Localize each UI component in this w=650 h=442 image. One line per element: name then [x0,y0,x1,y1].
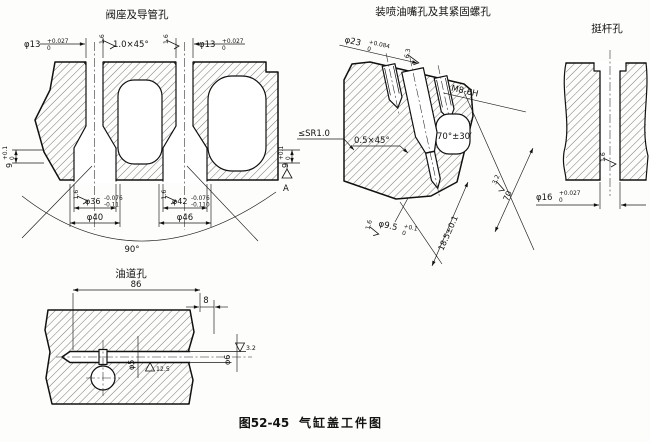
dim-seat-right-od: φ46 [177,213,193,223]
dim-oil-offset: 8 [203,296,208,306]
svg-text:0: 0 [10,156,16,160]
svg-text:1.6: 1.6 [73,190,80,200]
svg-text:-0.076: -0.076 [104,196,123,202]
tip-dim: φ9.5 +0.1 0 1.6 [363,198,418,240]
drawing-page: 阀座及导管孔 φ13 +0.027 [0,0,650,442]
svg-text:9: 9 [281,163,290,168]
dim-inj-chamfer: 0.5×45° [354,136,390,146]
svg-text:3.2: 3.2 [246,345,256,352]
dim-chamfer: 1.0×45° [113,40,149,50]
svg-text:-0.11: -0.11 [104,203,119,209]
tappet-title: 挺杆孔 [591,22,623,35]
seat-depth-left-dim: 9 +0.1 0 [3,146,44,168]
svg-text:0: 0 [559,198,563,204]
svg-text:1.6: 1.6 [161,190,168,200]
engineering-drawing: 阀座及导管孔 φ13 +0.027 [0,0,650,442]
oil-view: 油道孔 86 8 φ5 [45,267,256,404]
tappet-dim: φ16 +0.027 0 [536,182,646,209]
svg-text:12.5: 12.5 [156,366,170,373]
figure-caption: 图52-45 气缸盖工件图 [239,415,383,430]
svg-text:1.6: 1.6 [600,152,607,162]
dim-tappet-bore: φ16 [536,193,552,203]
dim-seat-angle: 90° [124,245,139,255]
dim-cone-angle: 70°±30′ [437,132,472,142]
datum-label: A [283,184,289,194]
seat-depth-right-dim: 9 +0.1 0 [278,146,300,168]
dim-guide-left: φ13 [24,40,40,50]
dim-seat-left-od: φ40 [87,213,103,223]
svg-text:9: 9 [5,163,14,168]
dim-oil-end-dia: φ6 [223,355,232,365]
injector-title: 装喷油嘴孔及其紧固螺孔 [375,5,491,18]
svg-text:-0.110: -0.110 [191,203,210,209]
dim-oil-length: 86 [131,280,142,290]
svg-text:+0.027: +0.027 [47,39,69,45]
svg-text:-0.076: -0.076 [191,196,210,202]
valve-seat-view: 阀座及导管孔 φ13 +0.027 [3,8,354,255]
svg-text:0: 0 [47,46,51,52]
svg-text:1.6: 1.6 [163,34,170,44]
roughness-mark: 6.3 [403,48,422,66]
oil-title: 油道孔 [115,267,147,280]
roughness-mark: 3.2 [236,343,256,352]
roughness-mark: 1.6 [163,34,179,49]
svg-text:1.6: 1.6 [99,34,106,44]
svg-text:+0.027: +0.027 [559,191,581,197]
caption-title: 气缸盖工件图 [298,415,383,430]
dim-depth: 18.5±0.1 [437,214,460,252]
svg-text:+0.1: +0.1 [3,146,9,160]
svg-text:3.2: 3.2 [491,174,501,186]
end-dia-callout: φ6 3.2 [191,334,256,372]
seat-bore-dimensions: 1.6 φ36 -0.076 -0.11 φ40 1.6 φ42 -0.076 … [70,184,211,227]
tappet-view: 挺杆孔 1.6 φ16 +0.027 0 [536,22,648,209]
dim-oil-main-dia: φ5 [127,360,136,370]
svg-text:0: 0 [222,46,226,52]
left-port-cavity [118,80,162,164]
valve-seat-title: 阀座及导管孔 [106,8,169,21]
dim-seat-right: φ42 [172,197,187,206]
right-port-cavity [208,76,266,171]
svg-text:+0.1: +0.1 [279,146,285,160]
svg-text:0: 0 [286,156,292,160]
guide-hole-dimensions: φ13 +0.027 0 1.0×45° φ13 +0.027 0 1.6 1.… [24,34,245,58]
dim-seat-left: φ36 [85,197,100,206]
svg-text:+0.027: +0.027 [222,39,244,45]
caption-number: 图52-45 [239,416,289,430]
sr-note-text: ≤SR1.0 [298,129,330,139]
svg-text:0: 0 [401,231,406,238]
dim-guide-right: φ13 [199,40,215,50]
svg-text:+0.084: +0.084 [368,40,391,51]
injector-view: 装喷油嘴孔及其紧固螺孔 φ23 +0.084 0 [339,5,534,266]
